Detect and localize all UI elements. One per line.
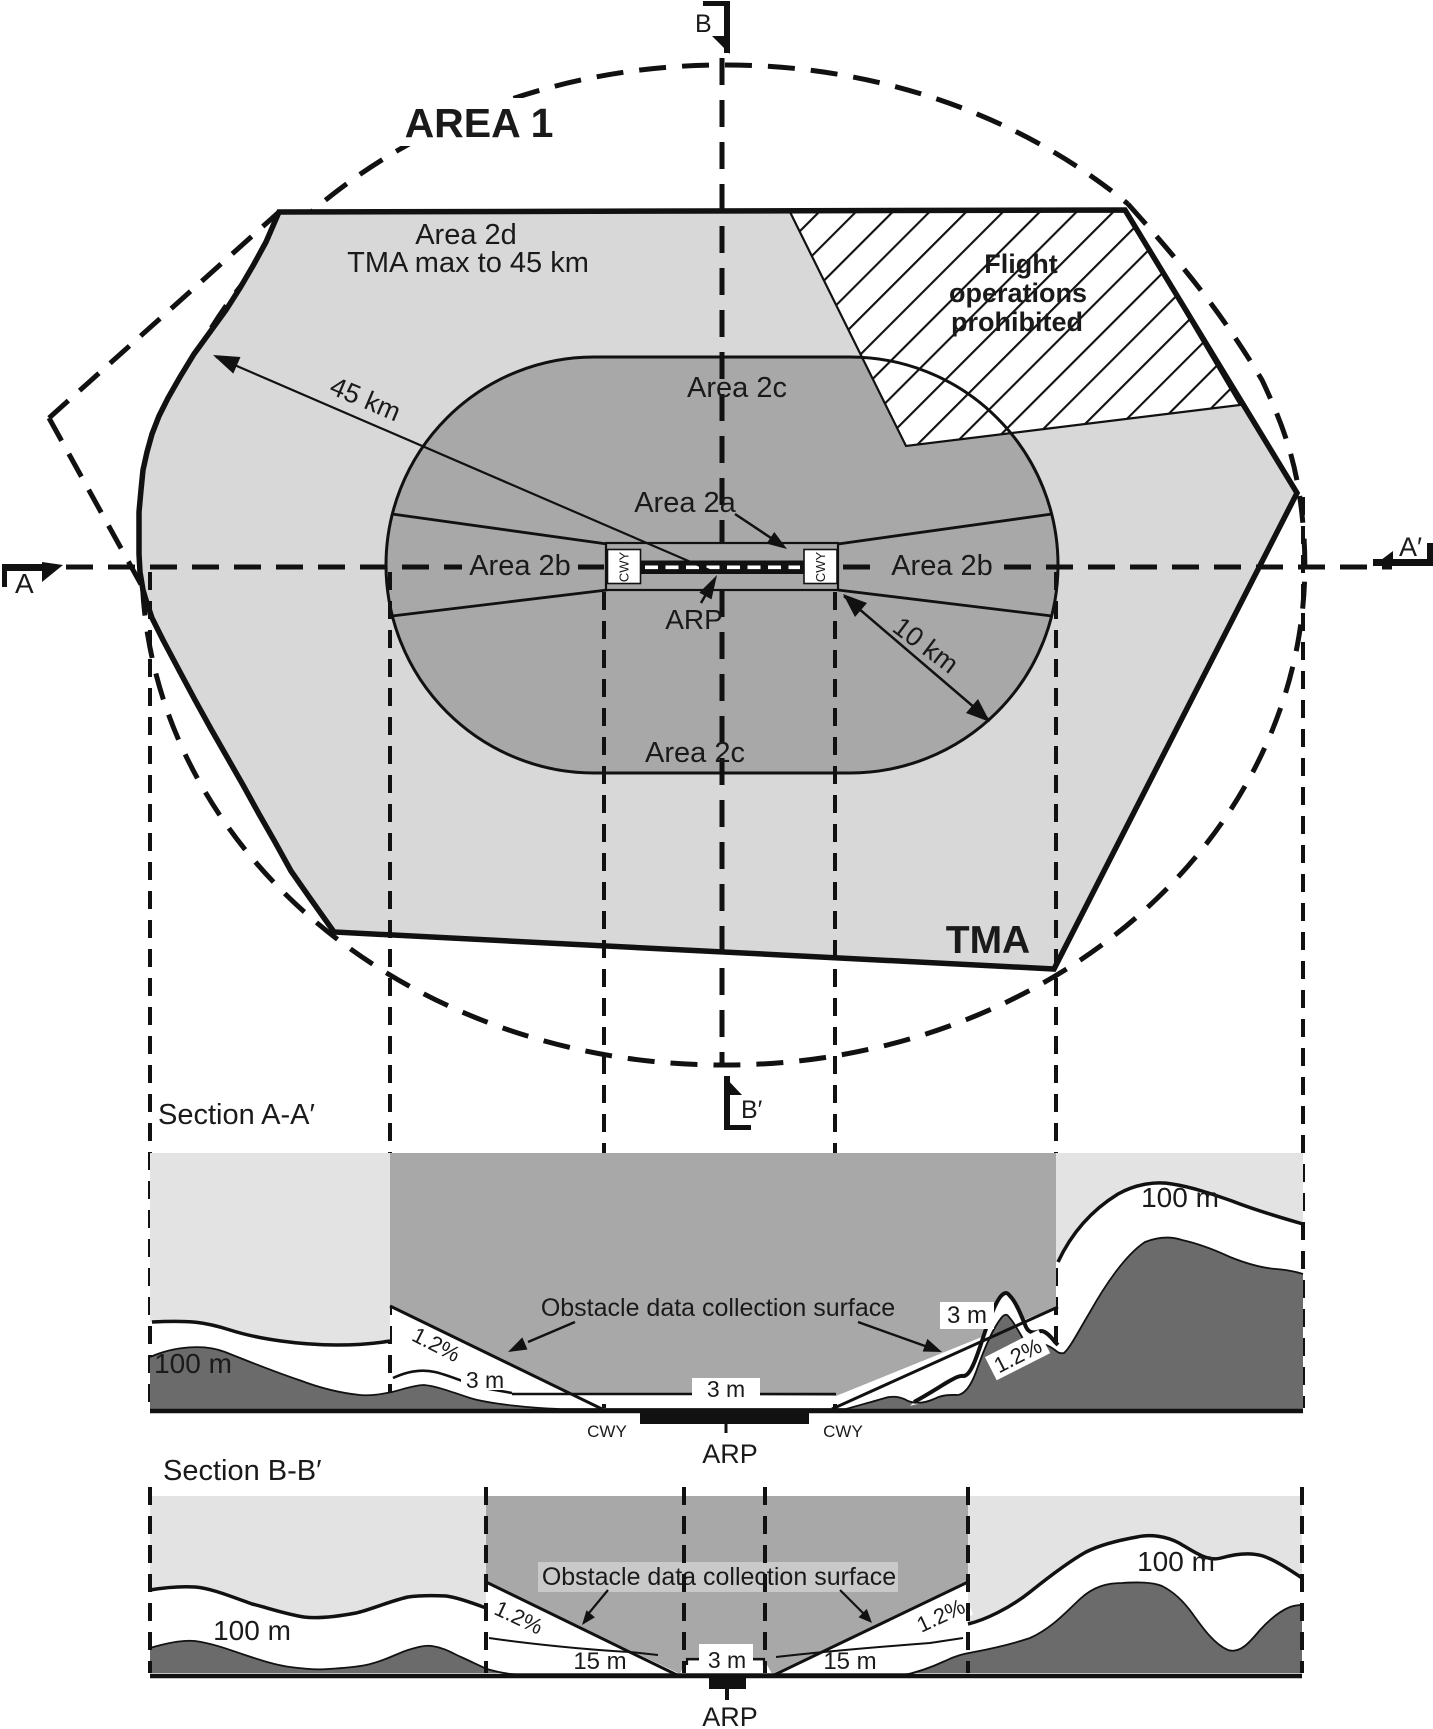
svg-text:Obstacle data collection surfa: Obstacle data collection surface [542,1563,896,1591]
svg-text:Area 2a: Area 2a [634,487,736,519]
svg-text:3 m: 3 m [466,1367,504,1393]
svg-text:ARP: ARP [702,1439,758,1469]
svg-text:100 m: 100 m [1141,1182,1219,1213]
svg-text:B: B [695,10,712,38]
svg-text:CWY: CWY [813,552,828,583]
svg-text:100 m: 100 m [154,1348,232,1379]
svg-text:100 m: 100 m [1137,1546,1215,1577]
svg-text:ARP: ARP [665,604,723,635]
svg-text:B′: B′ [741,1096,763,1124]
svg-text:100 m: 100 m [213,1615,291,1646]
svg-text:Area 2c: Area 2c [687,372,787,404]
svg-text:Section A-A′: Section A-A′ [158,1099,315,1131]
svg-text:Area 2b: Area 2b [891,550,993,582]
svg-text:3 m: 3 m [947,1302,987,1329]
svg-text:A′: A′ [1399,532,1422,562]
svg-text:Obstacle data collection surfa: Obstacle data collection surface [541,1294,895,1322]
svg-text:A: A [15,568,34,599]
svg-text:ARP: ARP [702,1702,758,1729]
svg-text:CWY: CWY [823,1422,863,1441]
svg-text:AREA 1: AREA 1 [405,100,554,146]
svg-text:prohibited: prohibited [951,307,1083,337]
svg-text:TMA max to 45 km: TMA max to 45 km [347,247,589,279]
svg-text:15 m: 15 m [573,1648,626,1675]
svg-text:CWY: CWY [617,552,632,583]
svg-text:3 m: 3 m [707,1376,745,1402]
svg-text:Area 2c: Area 2c [645,737,745,769]
svg-text:Flight: Flight [984,249,1057,279]
svg-text:CWY: CWY [587,1422,627,1441]
svg-text:Section B-B′: Section B-B′ [163,1455,322,1487]
svg-text:3 m: 3 m [708,1647,746,1673]
svg-text:operations: operations [949,278,1087,308]
svg-text:Area 2b: Area 2b [469,550,571,582]
svg-text:TMA: TMA [946,919,1030,962]
svg-text:15 m: 15 m [823,1648,876,1675]
